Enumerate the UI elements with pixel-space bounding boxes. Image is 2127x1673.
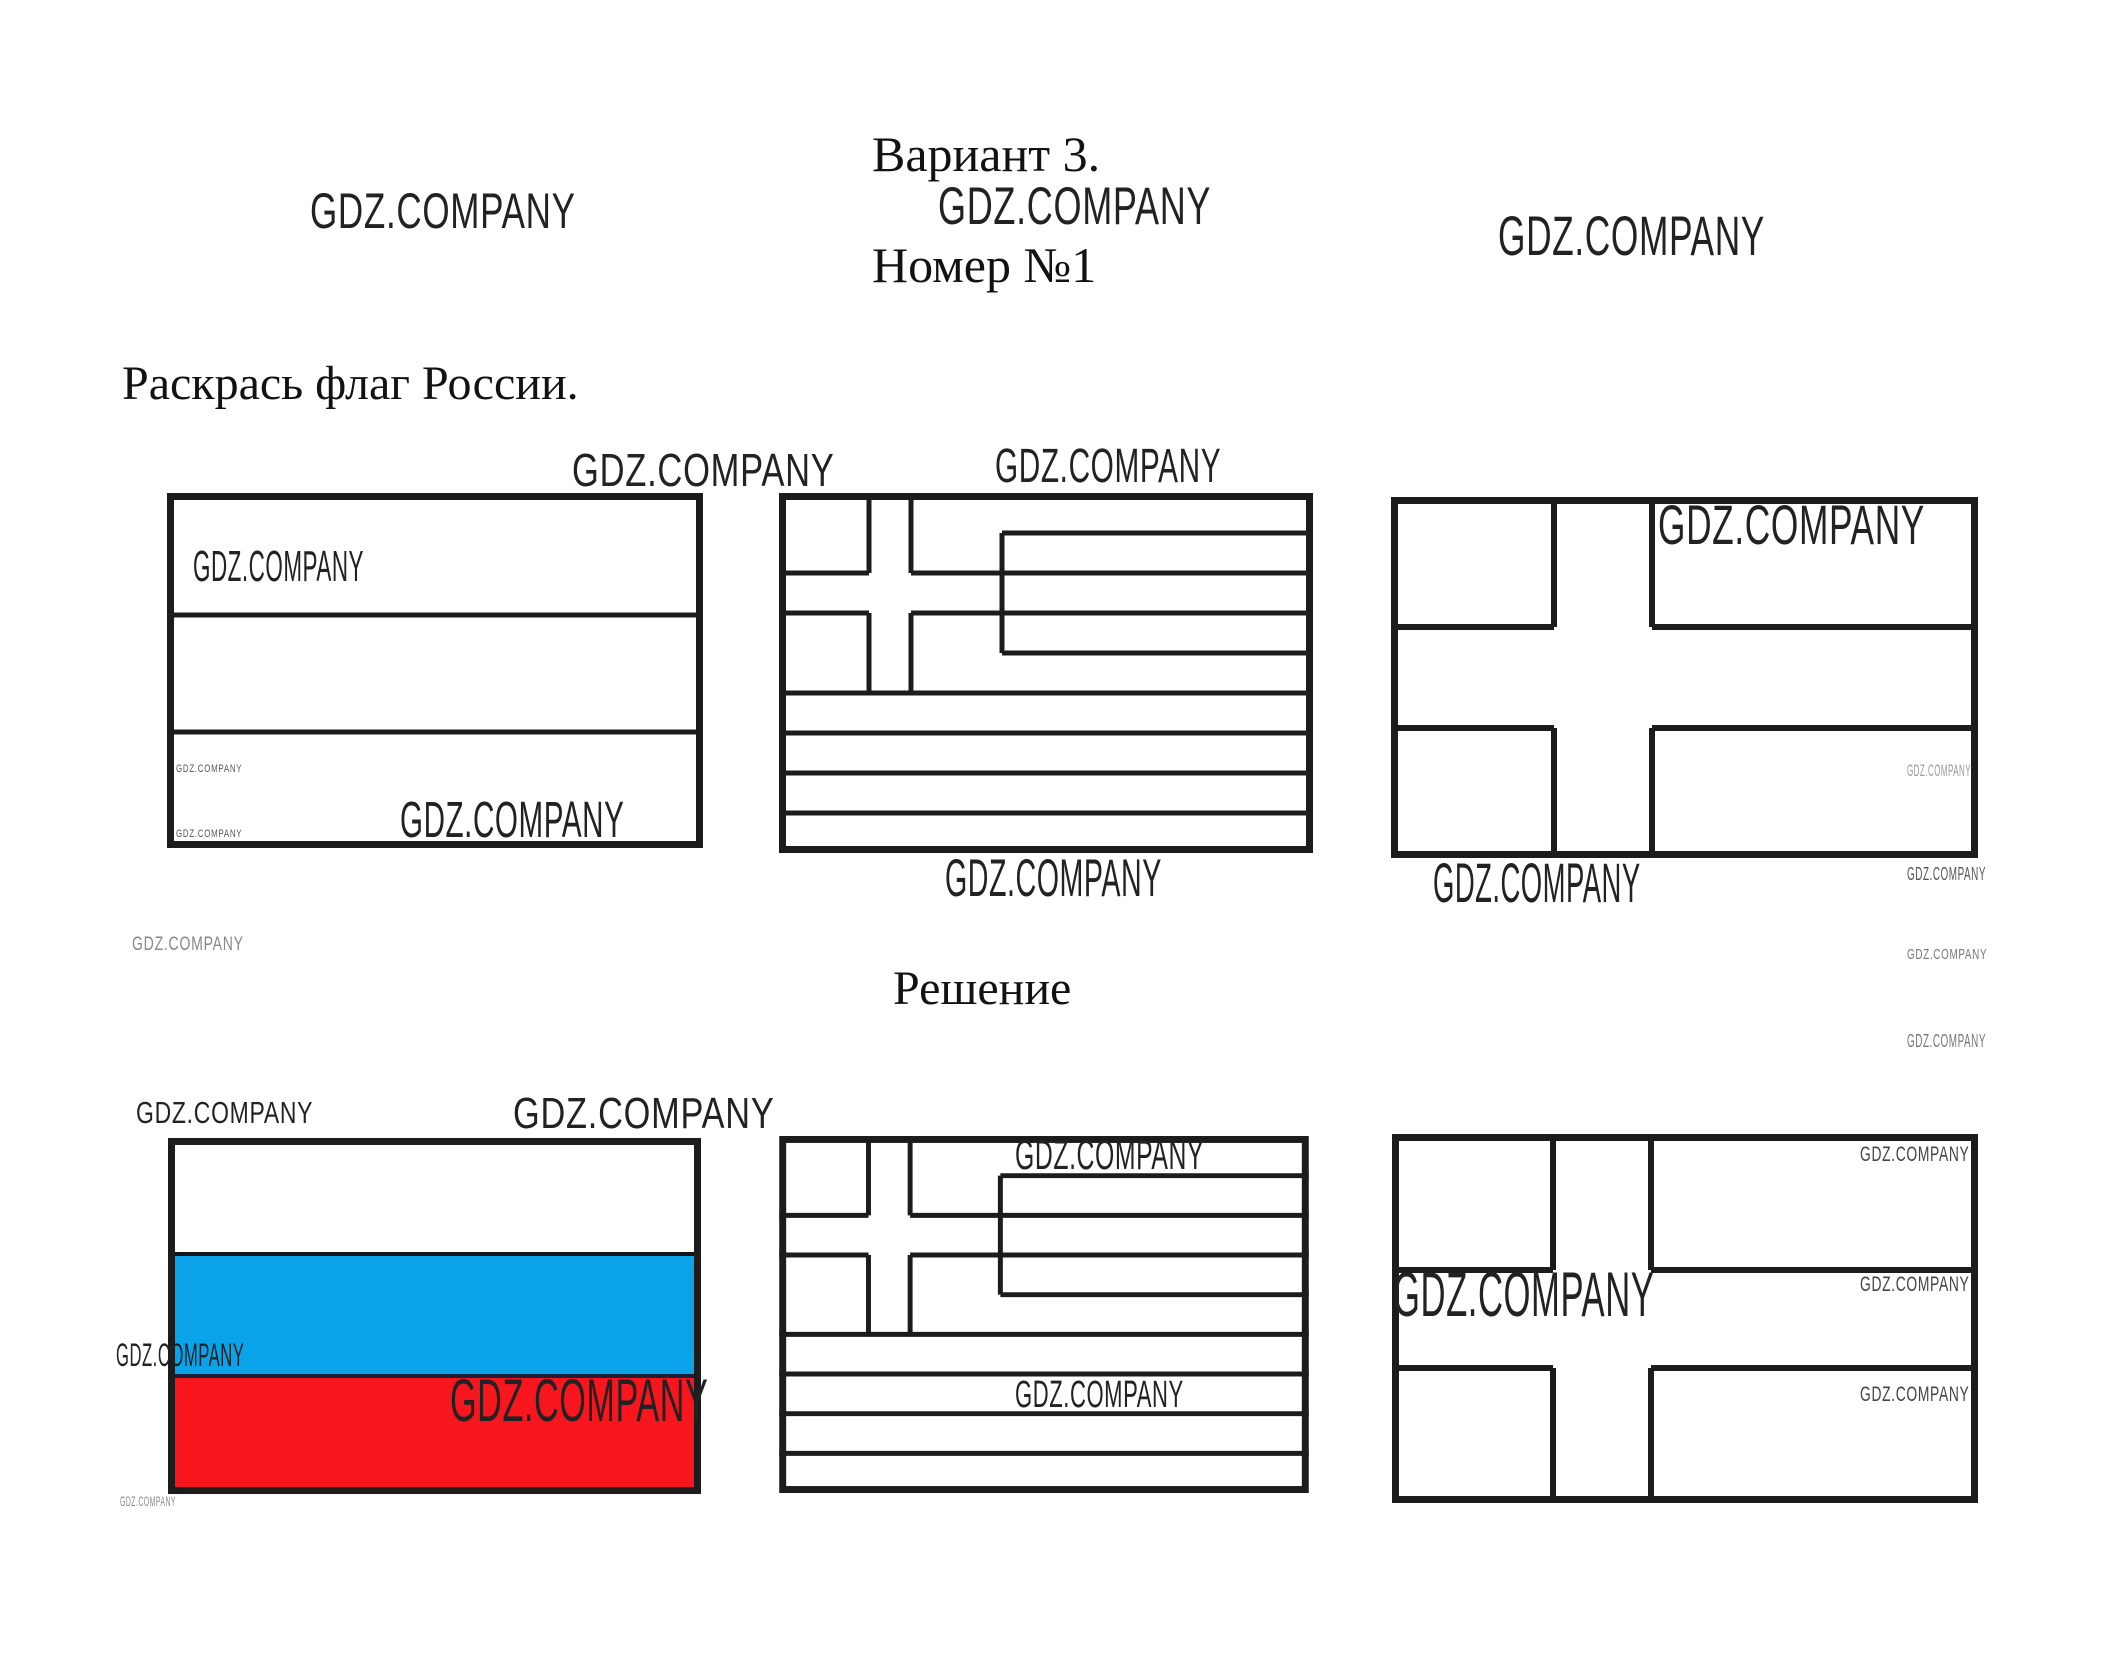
watermark: GDZ.COMPANY (513, 1092, 775, 1136)
watermark: GDZ.COMPANY (572, 447, 835, 493)
worksheet-page: Вариант 3. Номер №1 Раскрась флаг России… (0, 0, 2127, 1673)
watermark: GDZ.COMPANY (136, 1097, 313, 1128)
greece-flag-outline (779, 493, 1313, 853)
band-divider-lines (167, 615, 703, 732)
watermark: GDZ.COMPANY (945, 852, 1162, 905)
watermark: GDZ.COMPANY (310, 186, 576, 236)
flag-border (783, 1139, 1306, 1489)
watermark: GDZ.COMPANY (1860, 1384, 1969, 1405)
watermark: GDZ.COMPANY (1015, 1134, 1204, 1176)
solution-heading: Решение (893, 964, 1071, 1014)
russia-blue-band (168, 1254, 701, 1376)
watermark: GDZ.COMPANY (120, 1494, 176, 1508)
watermark: GDZ.COMPANY (132, 935, 244, 954)
watermark: GDZ.COMPANY (193, 545, 364, 589)
watermark: GDZ.COMPANY (1498, 208, 1765, 264)
watermark: GDZ.COMPANY (450, 1371, 708, 1431)
greece-flag-outline-svg (779, 493, 1313, 853)
watermark: GDZ.COMPANY (116, 1339, 244, 1371)
watermark: GDZ.COMPANY (1907, 1032, 1986, 1050)
variant-title: Вариант 3. (872, 128, 1100, 181)
russia-flag-colored (168, 1138, 701, 1494)
watermark: GDZ.COMPANY (1907, 947, 1987, 962)
watermark: GDZ.COMPANY (1393, 1264, 1654, 1327)
watermark: GDZ.COMPANY (938, 180, 1211, 233)
watermark: GDZ.COMPANY (176, 829, 242, 840)
watermark: GDZ.COMPANY (1658, 497, 1925, 553)
watermark: GDZ.COMPANY (400, 794, 624, 845)
watermark: GDZ.COMPANY (1433, 855, 1641, 911)
watermark: GDZ.COMPANY (1860, 1274, 1969, 1295)
watermark: GDZ.COMPANY (1907, 865, 1986, 883)
watermark: GDZ.COMPANY (1015, 1376, 1184, 1414)
task-number-title: Номер №1 (872, 239, 1096, 292)
greece-flag-outline-svg (777, 1136, 1311, 1493)
russia-flag-colored-svg (168, 1138, 701, 1494)
watermark: GDZ.COMPANY (1860, 1144, 1969, 1165)
flag-border (783, 497, 1310, 850)
greece-flag-outline (777, 1136, 1311, 1493)
watermark: GDZ.COMPANY (176, 764, 242, 775)
watermark: GDZ.COMPANY (995, 443, 1221, 491)
russia-white-band (168, 1138, 701, 1254)
watermark: GDZ.COMPANY (1907, 762, 1971, 779)
task-instruction: Раскрась флаг России. (122, 359, 579, 409)
stripes-and-cross-lines (779, 493, 1313, 813)
